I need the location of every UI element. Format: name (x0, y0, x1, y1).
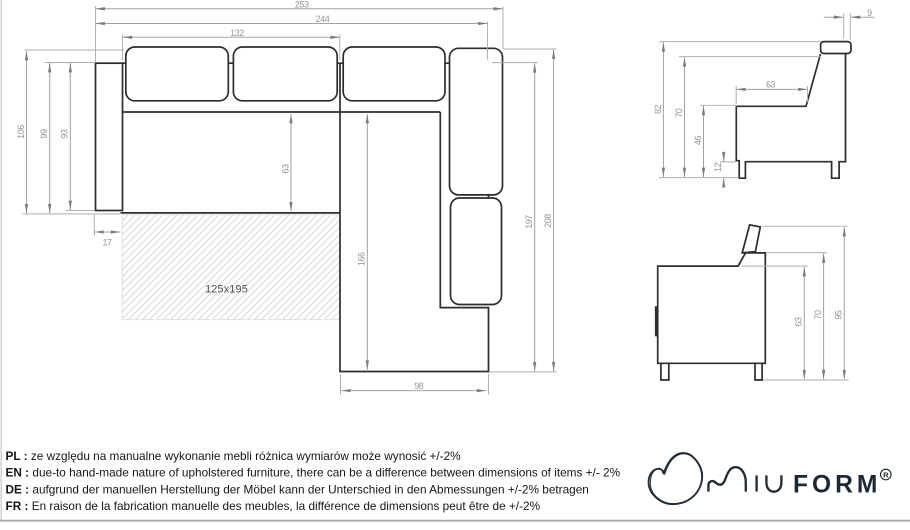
svg-text:63: 63 (280, 164, 290, 174)
svg-text:12: 12 (713, 162, 723, 172)
svg-text:98: 98 (414, 381, 424, 391)
svg-text:FR : En raison de la fabricati: FR : En raison de la fabrication manuell… (6, 499, 541, 513)
svg-text:70: 70 (813, 310, 823, 320)
svg-text:82: 82 (653, 104, 663, 114)
svg-text:DE : aufgrund der manuellen He: DE : aufgrund der manuellen Herstellung … (6, 482, 589, 496)
svg-text:132: 132 (230, 28, 244, 38)
svg-text:46: 46 (693, 136, 703, 146)
svg-text:17: 17 (102, 238, 112, 248)
svg-text:63: 63 (766, 80, 776, 90)
svg-text:PL : ze względu na manualne wy: PL : ze względu na manualne wykonanie me… (6, 449, 462, 463)
svg-text:244: 244 (316, 14, 330, 24)
svg-text:253: 253 (295, 0, 309, 10)
svg-text:R: R (883, 470, 889, 479)
svg-text:EN : due-to hand-made nature o: EN : due-to hand-made nature of upholste… (6, 466, 621, 480)
svg-text:FORM: FORM (793, 471, 881, 498)
svg-text:125x195: 125x195 (205, 284, 248, 296)
svg-text:166: 166 (357, 252, 367, 266)
svg-text:197: 197 (524, 215, 534, 229)
svg-text:93: 93 (60, 129, 70, 139)
svg-text:106: 106 (16, 125, 26, 139)
svg-text:9: 9 (867, 8, 872, 18)
svg-text:208: 208 (543, 214, 553, 228)
svg-text:63: 63 (794, 317, 804, 327)
svg-text:99: 99 (39, 129, 49, 139)
svg-text:70: 70 (674, 108, 684, 118)
svg-text:95: 95 (834, 310, 844, 320)
